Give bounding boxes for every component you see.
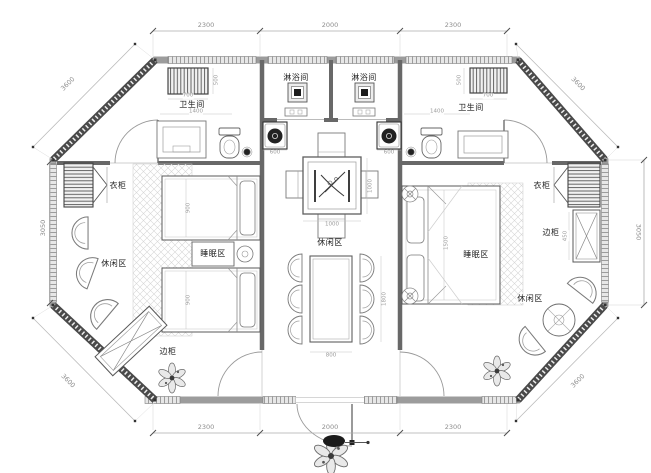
dim-double-bed: 1500 (444, 236, 450, 250)
dim-bottom-right: 2300 (444, 424, 463, 431)
dim-bottom-left: 2300 (197, 424, 216, 431)
room-label-cabinet-right: 边柜 (542, 229, 561, 237)
tea-table (303, 157, 361, 214)
floor-drain (244, 149, 250, 155)
tea-chair (286, 171, 303, 198)
dim-left-side: 3050 (40, 219, 47, 238)
dim-radiator-depth-left: 500 (214, 75, 220, 86)
dim-bath-width-right: 1400 (430, 109, 444, 115)
dining-area (288, 254, 374, 344)
round-table (543, 304, 575, 336)
dim-top-right: 2300 (444, 22, 463, 29)
room-label-sleep-right: 睡眠区 (462, 251, 490, 259)
shower-sink (353, 108, 375, 116)
dim-right-side: 3050 (635, 223, 642, 242)
dim-bottom-center: 2000 (321, 424, 340, 431)
room-label-leisure-left: 休闲区 (100, 260, 128, 268)
side-cabinet (573, 210, 600, 262)
double-bed (402, 186, 500, 304)
dim-tea-table-v: 1000 (368, 179, 374, 193)
towel-radiator (168, 68, 208, 94)
single-bed (162, 268, 260, 332)
washing-machine-left (263, 122, 287, 149)
entry-plant (313, 435, 350, 473)
dim-radiator-width-right: 700 (483, 93, 494, 99)
room-label-leisure-center: 休闲区 (316, 239, 344, 247)
room-label-wardrobe-left: 衣柜 (109, 182, 128, 190)
dim-dining-length: 1800 (382, 292, 388, 306)
dim-bed-width-2: 900 (186, 295, 192, 306)
dim-bath-width-left: 1400 (189, 109, 203, 115)
towel-radiator (470, 68, 507, 93)
room-label-sleep-left: 睡眠区 (199, 250, 227, 258)
dim-cabinet-depth: 450 (563, 231, 569, 242)
dim-top-center: 2000 (321, 22, 340, 29)
bedpost-flower (402, 186, 418, 202)
room-label-shower-left: 淋浴间 (282, 74, 310, 82)
sink-counter (157, 121, 206, 158)
room-label-bathroom-right: 卫生间 (457, 104, 485, 112)
dim-dining-width: 800 (326, 353, 337, 359)
toilet (219, 128, 240, 158)
shower-sink (285, 108, 307, 116)
toilet (421, 128, 442, 158)
entry-opening (296, 395, 364, 405)
room-label-shower-right: 淋浴间 (350, 74, 378, 82)
dim-radiator-depth-right: 500 (457, 75, 463, 86)
dim-washer-left: 600 (270, 150, 281, 156)
tea-chair (318, 133, 345, 157)
floor-plan-page: 淋浴间 淋浴间 卫生间 卫生间 衣柜 衣柜 边柜 边柜 休闲区 休闲区 休闲区 … (0, 0, 651, 473)
room-label-wardrobe-right: 衣柜 (533, 182, 552, 190)
shower-left (285, 83, 307, 116)
dim-radiator-width-left: 700 (183, 93, 194, 99)
dim-tea-table: 1000 (325, 222, 339, 228)
room-label-cabinet-left: 边柜 (159, 348, 178, 356)
floor-drain (408, 149, 414, 155)
dim-top-left: 2300 (197, 22, 216, 29)
washing-machine-right (377, 122, 401, 149)
dining-table (310, 256, 352, 342)
sink-counter (458, 131, 508, 158)
single-bed (162, 176, 260, 240)
bedpost-flower (402, 288, 418, 304)
dim-washer-right: 600 (384, 150, 395, 156)
shower-right (353, 83, 375, 116)
room-label-leisure-right: 休闲区 (516, 295, 544, 303)
dim-bed-width-1: 900 (186, 203, 192, 214)
